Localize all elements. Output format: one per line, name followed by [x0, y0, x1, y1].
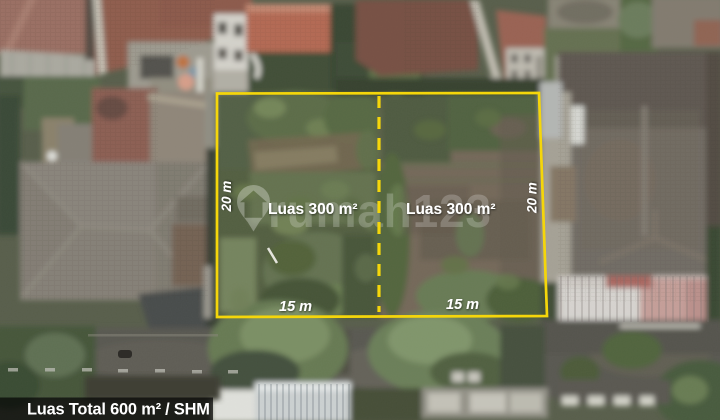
- svg-text:Luas 300 m²: Luas 300 m²: [268, 201, 358, 218]
- svg-text:15 m: 15 m: [279, 299, 312, 315]
- svg-text:Luas Total 600 m² / SHM: Luas Total 600 m² / SHM: [27, 401, 210, 419]
- svg-text:15 m: 15 m: [446, 297, 479, 313]
- svg-text:Luas 300 m²: Luas 300 m²: [406, 201, 496, 218]
- svg-text:20 m: 20 m: [219, 181, 234, 213]
- svg-text:20 m: 20 m: [525, 182, 540, 214]
